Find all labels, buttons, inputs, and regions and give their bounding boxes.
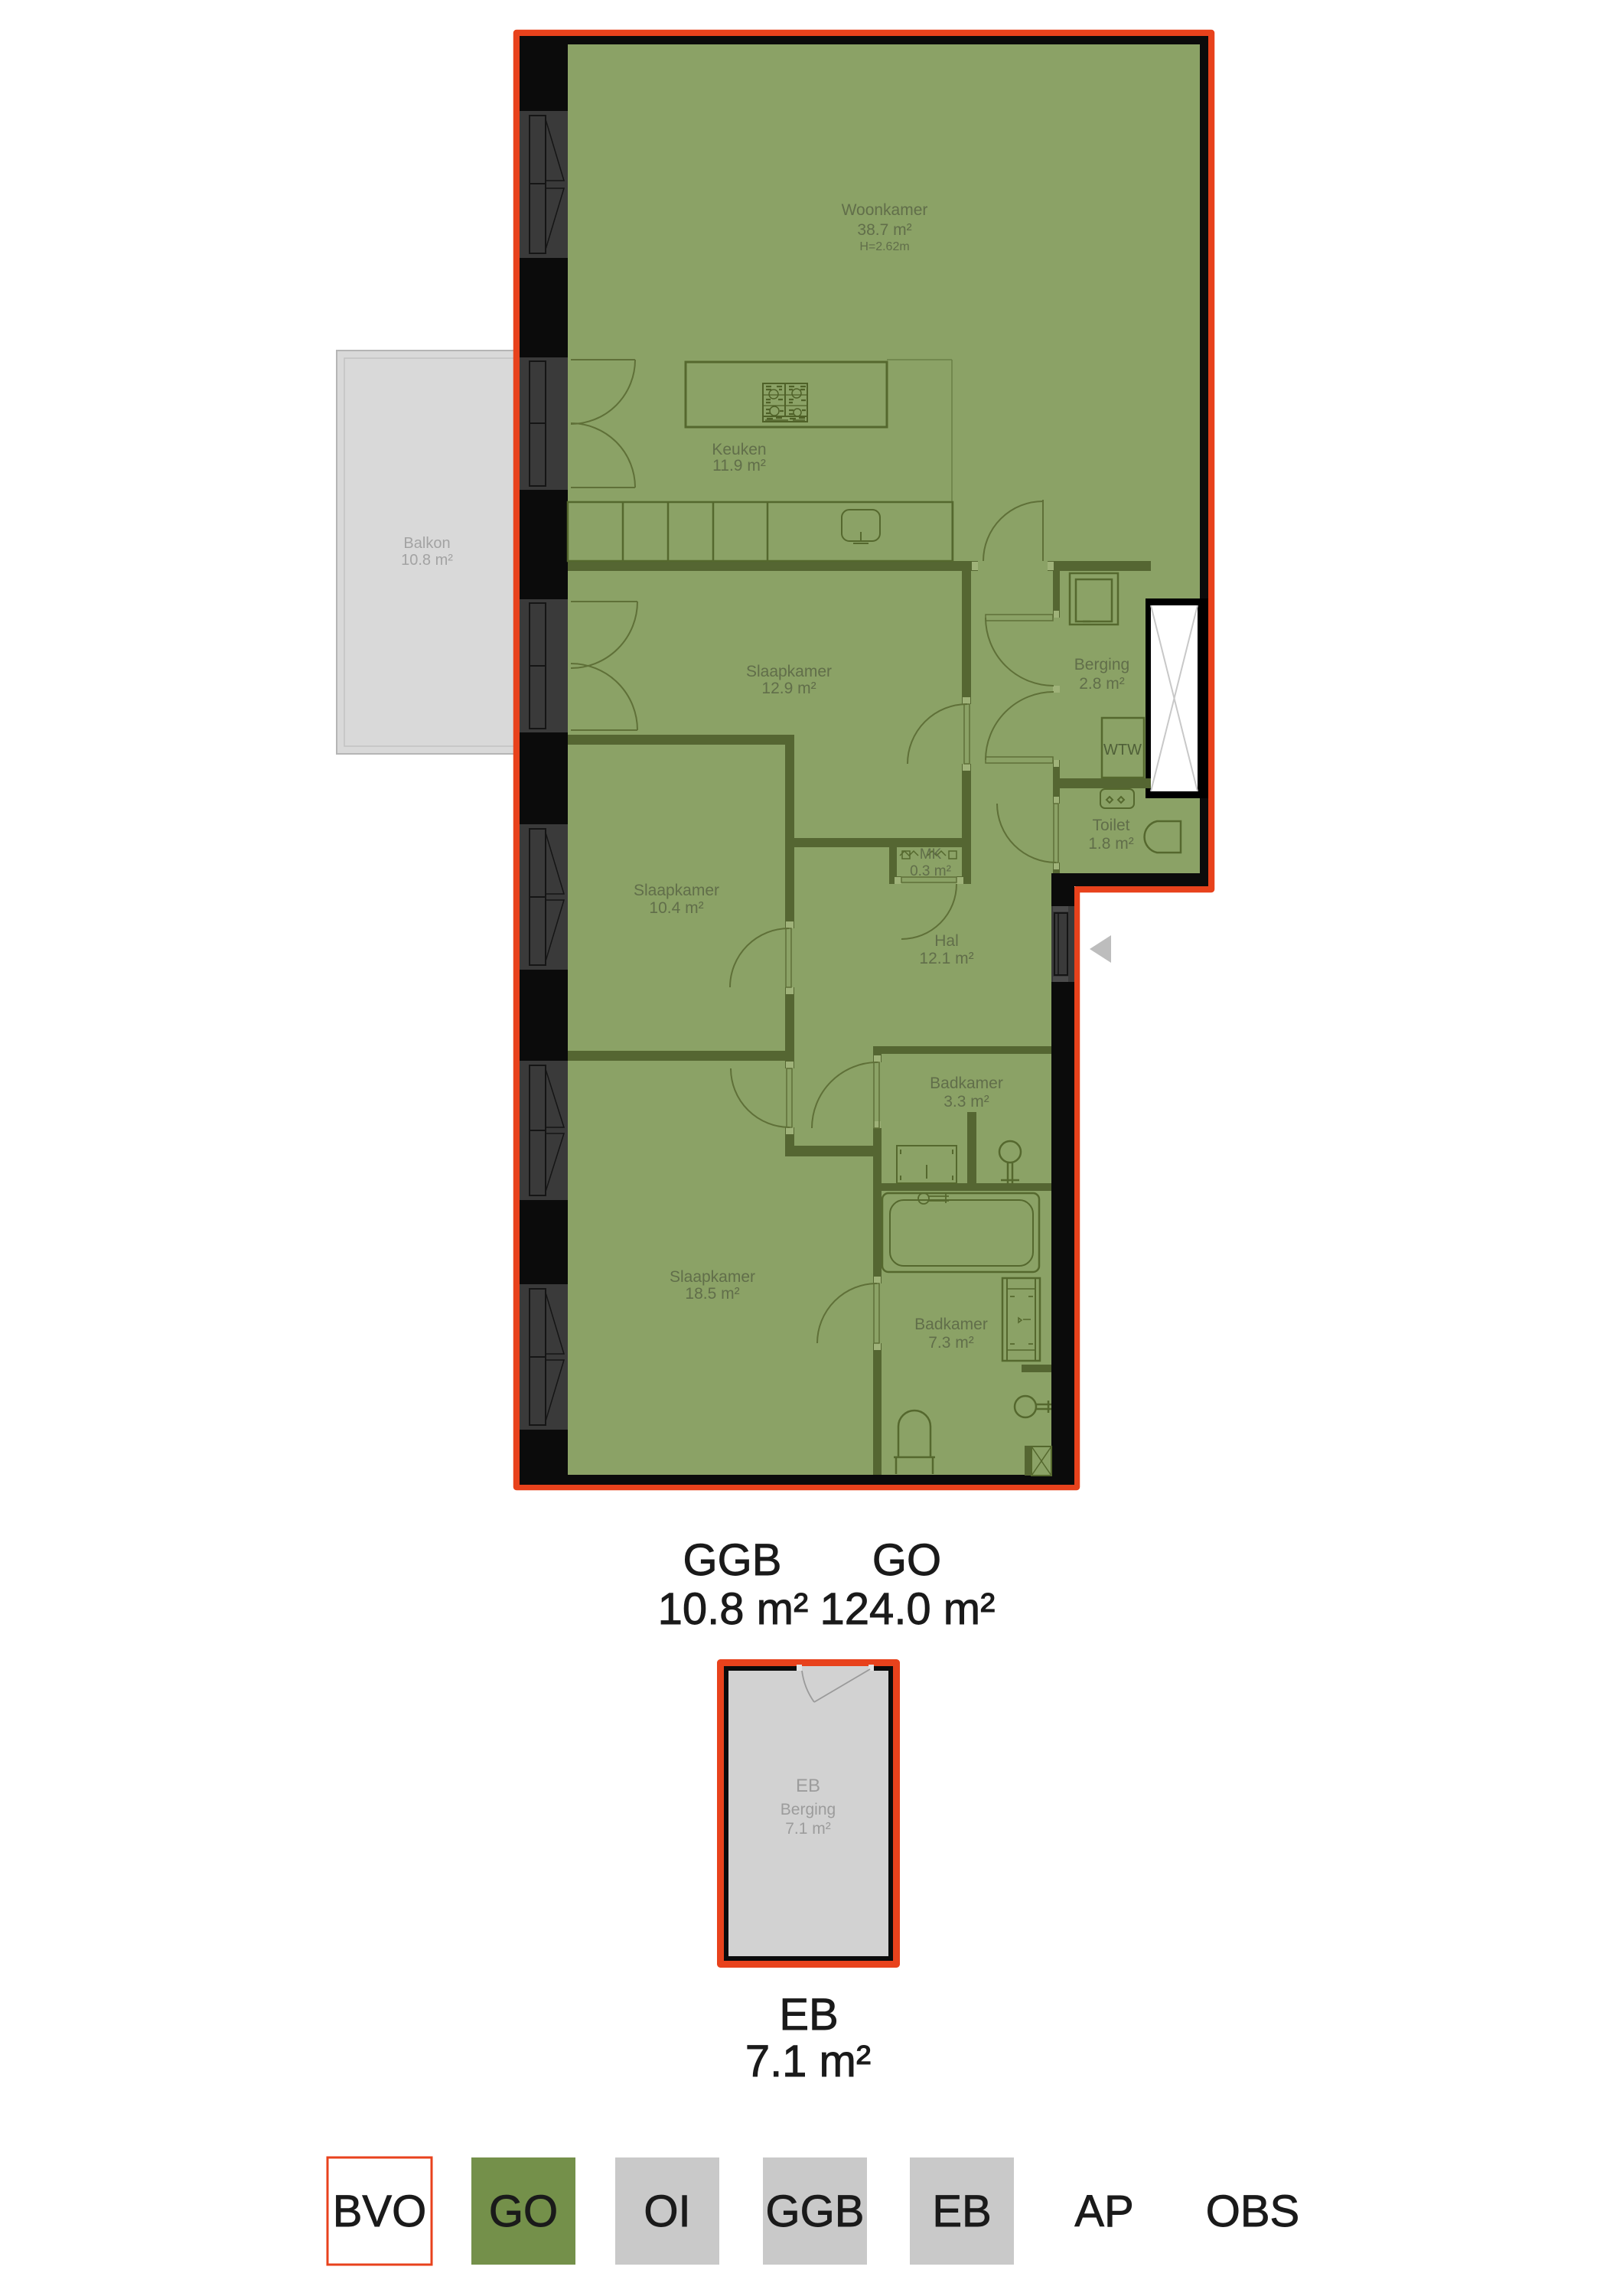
svg-text:7.1 m²: 7.1 m² [745,2037,871,2086]
svg-text:10.8 m²: 10.8 m² [658,1584,809,1634]
svg-text:Badkamer: Badkamer [914,1316,988,1333]
svg-text:Woonkamer: Woonkamer [842,201,928,219]
svg-text:Hal: Hal [934,932,959,950]
svg-text:EB: EB [779,1990,838,2040]
svg-text:GGB: GGB [683,1535,782,1585]
svg-text:38.7 m²: 38.7 m² [857,221,911,239]
svg-text:Keuken: Keuken [712,441,766,458]
svg-text:18.5 m²: 18.5 m² [685,1285,739,1303]
svg-text:OBS: OBS [1206,2187,1300,2236]
svg-text:Slaapkamer: Slaapkamer [634,882,719,899]
svg-text:OI: OI [644,2187,690,2236]
svg-text:AP: AP [1074,2187,1133,2236]
svg-text:Slaapkamer: Slaapkamer [746,663,832,680]
svg-text:GGB: GGB [766,2187,865,2236]
svg-text:WTW: WTW [1103,742,1142,758]
svg-text:7.1 m²: 7.1 m² [785,1820,831,1838]
svg-text:10.8 m²: 10.8 m² [401,552,453,569]
svg-text:124.0 m²: 124.0 m² [820,1584,996,1634]
svg-text:12.1 m²: 12.1 m² [919,950,973,967]
svg-text:0.3 m²: 0.3 m² [910,863,951,879]
svg-text:Badkamer: Badkamer [930,1075,1003,1092]
svg-text:BVO: BVO [333,2187,427,2236]
svg-text:EB: EB [932,2187,991,2236]
svg-text:Slaapkamer: Slaapkamer [670,1268,755,1286]
svg-text:MK: MK [920,846,942,863]
svg-text:3.3 m²: 3.3 m² [943,1093,989,1110]
svg-text:11.9 m²: 11.9 m² [712,457,766,475]
svg-text:Balkon: Balkon [403,535,450,552]
svg-text:GO: GO [489,2187,558,2236]
svg-text:10.4 m²: 10.4 m² [649,899,703,917]
svg-text:Toilet: Toilet [1092,817,1129,834]
svg-text:12.9 m²: 12.9 m² [761,680,816,697]
svg-text:Berging: Berging [781,1801,836,1818]
svg-text:1.8 m²: 1.8 m² [1088,835,1134,853]
svg-text:EB: EB [796,1776,820,1796]
svg-text:2.8 m²: 2.8 m² [1079,675,1125,693]
svg-text:7.3 m²: 7.3 m² [928,1334,974,1352]
svg-text:GO: GO [872,1535,941,1585]
svg-text:H=2.62m: H=2.62m [859,240,909,253]
svg-text:Berging: Berging [1074,656,1129,673]
